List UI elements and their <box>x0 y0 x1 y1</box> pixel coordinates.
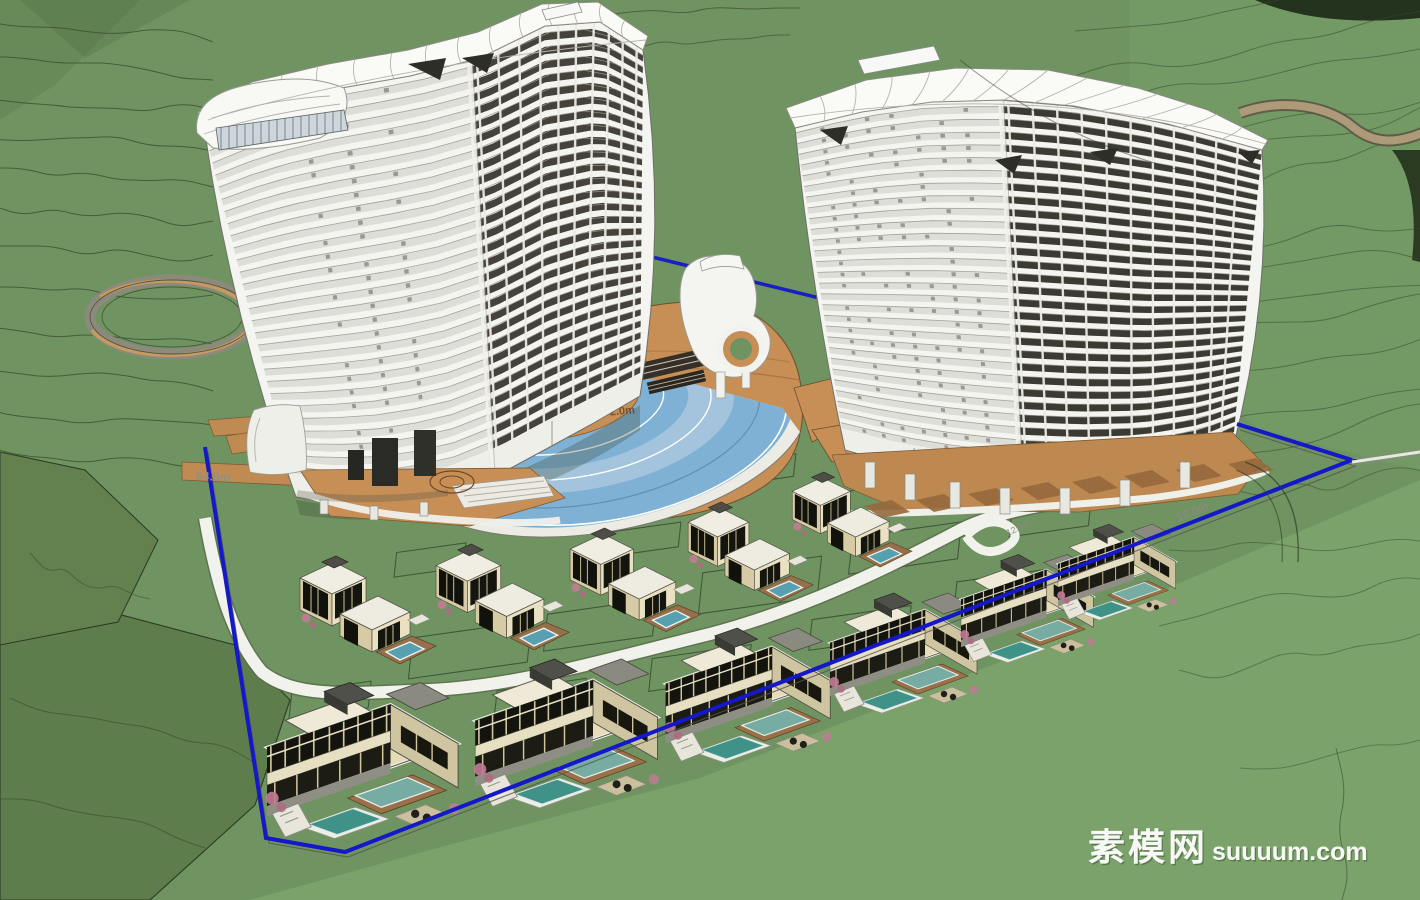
svg-text:54.0m: 54.0m <box>196 469 230 484</box>
